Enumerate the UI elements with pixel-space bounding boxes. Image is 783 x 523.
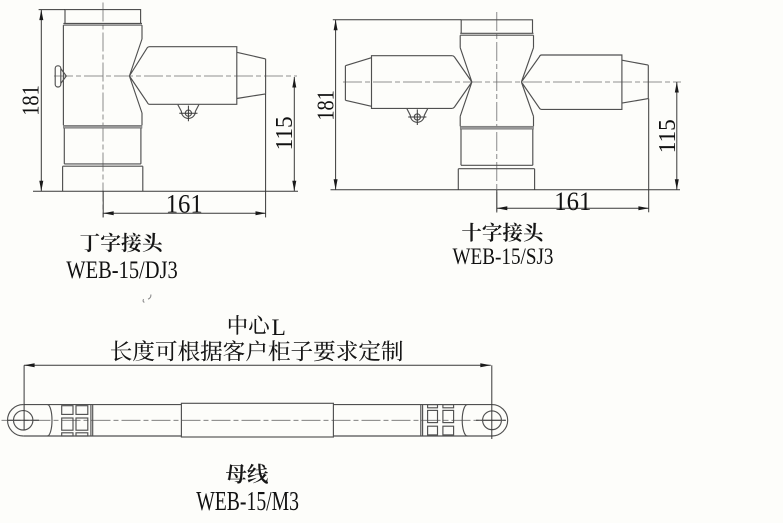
svg-text:115: 115	[654, 119, 681, 153]
svg-text:L: L	[272, 315, 286, 341]
svg-text:161: 161	[554, 186, 591, 216]
svg-text:WEB-15/DJ3: WEB-15/DJ3	[66, 255, 178, 284]
svg-text:161: 161	[166, 189, 203, 219]
svg-text:181: 181	[18, 85, 45, 116]
svg-text:WEB-15/M3: WEB-15/M3	[196, 486, 299, 517]
svg-text:115: 115	[271, 116, 298, 150]
svg-text:181: 181	[313, 90, 340, 121]
svg-text:WEB-15/SJ3: WEB-15/SJ3	[453, 244, 554, 270]
